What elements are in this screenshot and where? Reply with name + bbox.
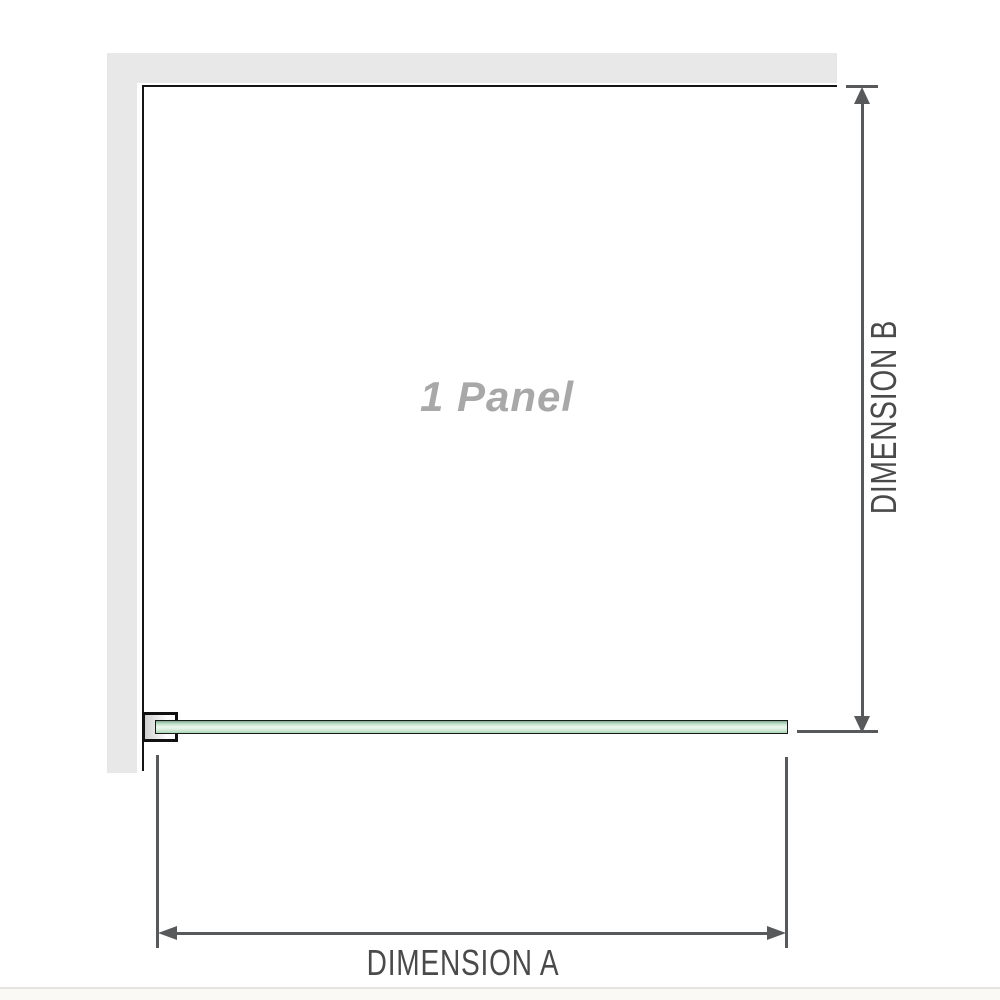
dimension-a-left-extension-line xyxy=(156,755,159,948)
shower-panel-diagram: 1 Panel DIMENSION B DIMENSION A xyxy=(0,0,1000,1000)
arrow-up-icon xyxy=(854,87,870,104)
dimension-a-label: DIMENSION A xyxy=(346,947,580,979)
dimension-a-right-extension-line xyxy=(785,757,788,948)
wall-left-strip xyxy=(107,53,137,773)
panel-count-label: 1 Panel xyxy=(347,373,647,421)
dimension-a-line xyxy=(165,932,770,935)
dimension-b-label: DIMENSION B xyxy=(868,300,900,534)
arrow-left-icon xyxy=(158,926,177,940)
wall-top-strip xyxy=(107,53,837,83)
arrow-down-icon xyxy=(854,716,870,733)
panel-outline-top-line xyxy=(142,85,837,87)
panel-outline-left-line xyxy=(142,85,144,771)
glass-panel-bar xyxy=(155,720,788,734)
footer-area xyxy=(0,989,1000,1000)
arrow-right-icon xyxy=(767,926,786,940)
